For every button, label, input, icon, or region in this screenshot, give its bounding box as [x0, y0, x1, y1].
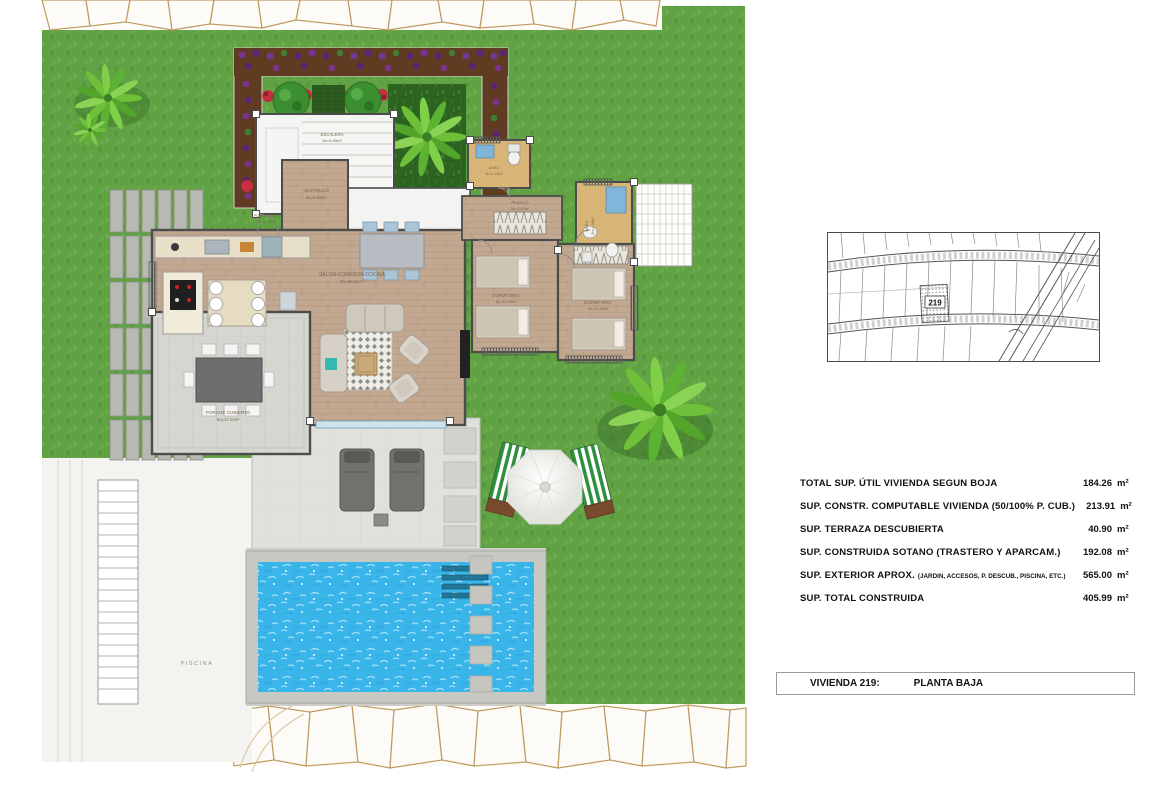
- teal-pillow: [325, 358, 337, 370]
- label-salon: SALON-COMEDOR-COCINA: [319, 272, 386, 278]
- area-value: 213.91: [1075, 501, 1115, 512]
- stone-path-top: [42, 0, 662, 30]
- label-aseo: ASEO: [489, 166, 500, 170]
- floor-plan-drawing: ESCALERA Su=4.90m² VESTIBULO Su=5.30m² P…: [0, 0, 770, 785]
- plot-219-label: 219: [928, 299, 942, 308]
- area-value: 40.90: [1072, 524, 1112, 535]
- area-label: SUP. TERRAZA DESCUBIERTA: [800, 524, 944, 535]
- svg-text:Su=66.51m²: Su=66.51m²: [340, 279, 365, 284]
- floor-plan-svg: ESCALERA Su=4.90m² VESTIBULO Su=5.30m² P…: [0, 0, 770, 785]
- area-unit: m²: [1117, 570, 1134, 581]
- umbrella-set: [485, 442, 614, 524]
- swimming-pool: [246, 551, 546, 703]
- area-unit: m²: [1117, 593, 1134, 604]
- stone-path-bottom: [228, 704, 746, 768]
- tv-unit: [460, 330, 470, 378]
- area-value: 565.00: [1072, 570, 1112, 581]
- palm-hedge-square: [387, 84, 467, 188]
- svg-text:Su=4.90m²: Su=4.90m²: [322, 138, 342, 143]
- area-label: SUP. TOTAL CONSTRUIDA: [800, 593, 924, 604]
- label-pasillo: PASILLO: [511, 200, 529, 205]
- label-vestibulo: VESTIBULO: [303, 188, 329, 193]
- area-unit: m²: [1117, 547, 1134, 558]
- label-dormitorio-2: DORMITORIO: [584, 300, 612, 305]
- label-dormitorio-1: DORMITORIO: [492, 293, 520, 298]
- vivienda-label: VIVIENDA 219:: [810, 678, 880, 689]
- table-row: SUP. EXTERIOR APROX. (JARDIN, ACCESOS, P…: [800, 570, 1134, 593]
- label-piscina: PISCINA: [181, 661, 214, 667]
- terrace-stepping-pads: [444, 428, 476, 546]
- area-label: SUP. CONSTRUIDA SOTANO (TRASTERO Y APARC…: [800, 547, 1061, 558]
- svg-text:Su=4.08m²: Su=4.08m²: [591, 216, 595, 234]
- svg-text:Su=2.92m²: Su=2.92m²: [511, 207, 530, 211]
- area-value: 192.08: [1072, 547, 1112, 558]
- sliding-door: [316, 421, 446, 428]
- area-unit: m²: [1120, 501, 1134, 512]
- table-row: SUP. CONSTRUIDA SOTANO (TRASTERO Y APARC…: [800, 547, 1134, 570]
- label-escalera: ESCALERA: [321, 132, 344, 137]
- area-sublabel: (JARDIN, ACCESOS, P. DESCUB., PISCINA, E…: [918, 573, 1066, 580]
- trellis-deck: [636, 184, 692, 266]
- svg-text:Su=17.12m²: Su=17.12m²: [217, 417, 241, 422]
- table-row: SUP. CONSTR. COMPUTABLE VIVIENDA (50/100…: [800, 501, 1134, 524]
- site-location-map: 219: [827, 232, 1100, 362]
- table-row: TOTAL SUP. ÚTIL VIVIENDA SEGUN BOJA 184.…: [800, 478, 1134, 501]
- label-bano: BAÑO: [584, 221, 589, 232]
- svg-text:Su=12.20m²: Su=12.20m²: [588, 307, 610, 311]
- area-value: 184.26: [1072, 478, 1112, 489]
- table-row: SUP. TOTAL CONSTRUIDA 405.99 m²: [800, 593, 1134, 616]
- area-unit: m²: [1117, 478, 1134, 489]
- label-porche-cubierto: PORCHE CUBIERTO: [206, 410, 251, 415]
- exterior-stair: [98, 480, 138, 704]
- area-label: SUP. CONSTR. COMPUTABLE VIVIENDA (50/100…: [800, 501, 1075, 512]
- area-label: TOTAL SUP. ÚTIL VIVIENDA SEGUN BOJA: [800, 478, 997, 489]
- area-label: SUP. EXTERIOR APROX.: [800, 570, 915, 581]
- title-bar: VIVIENDA 219: PLANTA BAJA: [776, 672, 1135, 695]
- table-row: SUP. TERRAZA DESCUBIERTA 40.90 m²: [800, 524, 1134, 547]
- svg-text:Su=12.20m²: Su=12.20m²: [496, 300, 518, 304]
- area-unit: m²: [1117, 524, 1134, 535]
- label-porche-cub: PORCHE CUB.: [254, 214, 280, 218]
- svg-text:Su=1.97m²: Su=1.97m²: [258, 220, 276, 224]
- area-value: 405.99: [1072, 593, 1112, 604]
- svg-text:Su=5.30m²: Su=5.30m²: [306, 195, 327, 200]
- areas-table: TOTAL SUP. ÚTIL VIVIENDA SEGUN BOJA 184.…: [800, 478, 1134, 616]
- shrubs: [273, 82, 381, 118]
- svg-text:Su=2.25m²: Su=2.25m²: [485, 172, 503, 176]
- planta-label: PLANTA BAJA: [914, 678, 983, 689]
- sofa: [346, 304, 404, 332]
